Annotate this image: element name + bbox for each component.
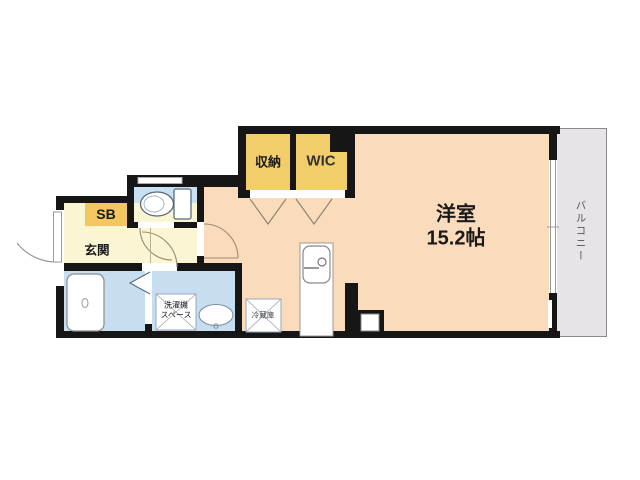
balcony-label: バルコニー [574,200,589,263]
wic-room-label: WIC [306,153,335,170]
main-room-door-arc-icon [204,224,238,258]
entrance-label: 玄関 [84,240,109,259]
laundry-space-label-line1: 洗濯機 [160,301,191,311]
balcony-window-frame [547,160,559,293]
main-room-size-label: 15.2帖 [427,222,486,251]
kitchen-sink-icon [300,243,333,336]
folding-door-icon [130,272,150,294]
storage-room-label: 収納 [255,152,281,171]
floor-plan: 収納 WIC 洋室 15.2帖 バルコニー SB 玄関 洗濯機 スペース 冷蔵庫 [0,0,640,480]
toilet-icon [141,189,192,219]
entry-door-icon [17,212,62,262]
toilet-door-arc-icon [140,228,172,260]
pipe-space-box [361,314,379,331]
bathtub-icon [67,274,104,331]
washroom-door-arc-icon [142,232,177,267]
fridge-space-label: 冷蔵庫 [252,310,275,321]
laundry-space-label: 洗濯機 スペース [160,301,191,322]
folding-door-icon [250,199,332,224]
shoebox-label: SB [96,206,115,222]
wash-basin-icon [199,305,233,329]
laundry-space-label-line2: スペース [160,311,191,321]
toilet-window [138,178,182,184]
